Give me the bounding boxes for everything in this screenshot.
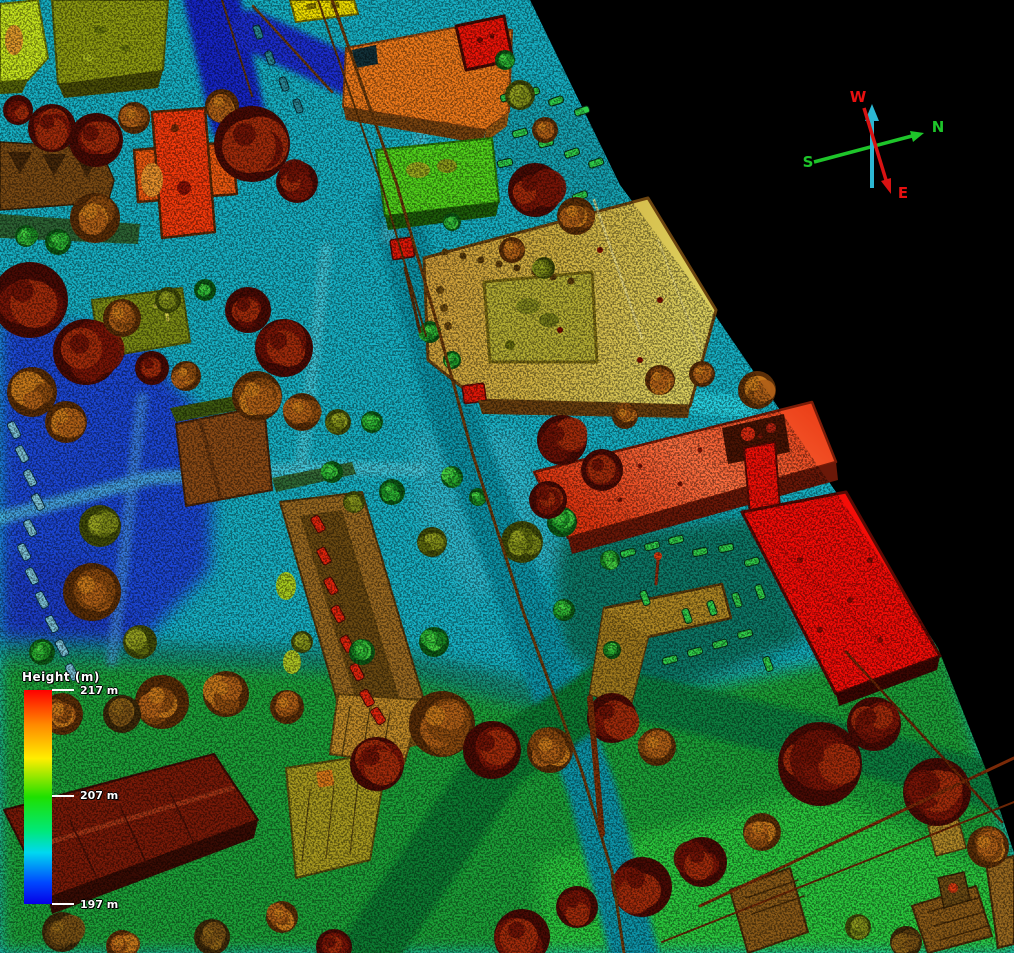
axis-east-arrowhead bbox=[881, 178, 891, 194]
axis-north-arrowhead bbox=[910, 131, 924, 142]
point-cloud-viewport[interactable]: Height (m) 217 m207 m197 m W N S E bbox=[0, 0, 1014, 953]
axis-south-north-line bbox=[814, 136, 912, 162]
legend-tick: 207 m bbox=[52, 795, 118, 797]
legend-tick: 217 m bbox=[52, 689, 118, 691]
legend-tick-label: 217 m bbox=[80, 684, 118, 697]
axis-label-south: S bbox=[803, 153, 814, 171]
axis-label-north: N bbox=[932, 118, 945, 136]
legend-tick-label: 197 m bbox=[80, 898, 118, 911]
legend-tick: 197 m bbox=[52, 903, 118, 905]
axis-label-west: W bbox=[850, 88, 867, 106]
legend-tick-line bbox=[52, 689, 74, 691]
legend-title: Height (m) bbox=[22, 670, 162, 684]
axis-label-east: E bbox=[898, 184, 908, 202]
compass-widget[interactable]: W N S E bbox=[798, 86, 958, 210]
legend-tick-label: 207 m bbox=[80, 789, 118, 802]
height-legend: Height (m) 217 m207 m197 m bbox=[22, 670, 162, 914]
legend-tick-line bbox=[52, 795, 74, 797]
legend-tick-line bbox=[52, 903, 74, 905]
legend-body: 217 m207 m197 m bbox=[22, 690, 162, 914]
legend-colorbar bbox=[24, 690, 52, 904]
